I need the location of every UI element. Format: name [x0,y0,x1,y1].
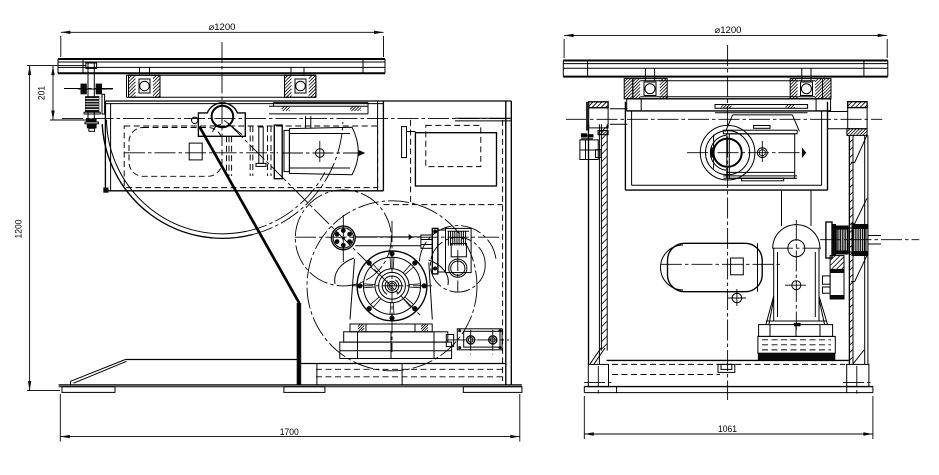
svg-text:⌀1200: ⌀1200 [209,22,236,32]
svg-text:201: 201 [37,86,47,100]
svg-text:1061: 1061 [718,424,737,434]
svg-text:⌀1200: ⌀1200 [715,25,742,35]
svg-text:1200: 1200 [14,220,24,239]
svg-text:1700: 1700 [280,427,299,437]
